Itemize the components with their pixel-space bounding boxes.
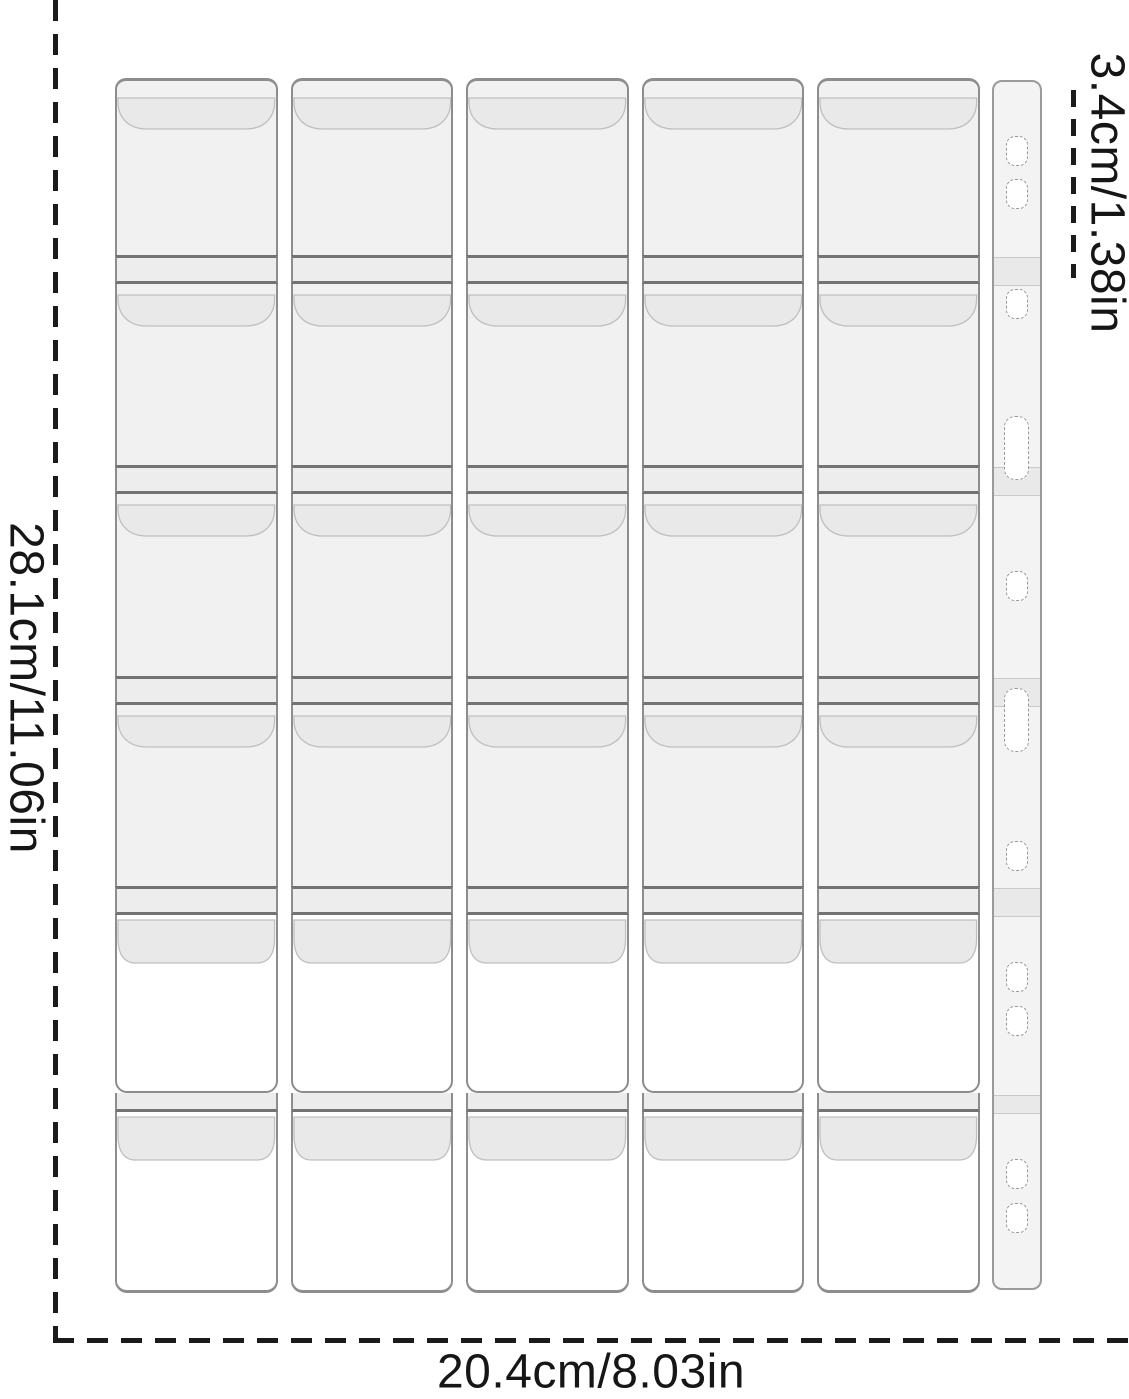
pocket-flap bbox=[117, 97, 276, 132]
pocket-cell bbox=[817, 78, 980, 255]
pocket-measure-line bbox=[1071, 90, 1076, 278]
pocket-flap bbox=[819, 919, 978, 965]
row-separator-band bbox=[115, 886, 278, 915]
row-separator-band bbox=[817, 465, 980, 494]
row-separator-band bbox=[291, 465, 454, 494]
width-measure-line bbox=[53, 1338, 1129, 1343]
pocket-flap bbox=[644, 1116, 803, 1162]
pocket-flap bbox=[819, 1116, 978, 1162]
pocket-column bbox=[115, 78, 278, 1293]
pocket-cell bbox=[817, 915, 980, 1093]
binder-hole bbox=[1006, 289, 1028, 319]
binder-hole bbox=[1004, 416, 1029, 480]
pocket-flap bbox=[293, 919, 452, 965]
strip-seam-band bbox=[994, 1095, 1040, 1114]
binder-edge-strip bbox=[992, 80, 1042, 1290]
pocket-cell bbox=[115, 494, 278, 676]
pocket-cell bbox=[466, 705, 629, 886]
pocket-flap bbox=[819, 97, 978, 132]
pocket-cell bbox=[642, 705, 805, 886]
pocket-dimension-label: 3.4cm/1.38in bbox=[1080, 53, 1129, 334]
pocket-cell bbox=[115, 915, 278, 1093]
pocket-flap bbox=[117, 715, 276, 750]
pocket-column bbox=[291, 78, 454, 1293]
height-dimension-label: 28.1cm/11.06in bbox=[0, 522, 54, 854]
row-separator-band bbox=[642, 255, 805, 284]
pocket-flap bbox=[819, 504, 978, 539]
binder-hole bbox=[1006, 179, 1028, 209]
row-separator-band bbox=[466, 1093, 629, 1112]
row-separator-band bbox=[291, 886, 454, 915]
pocket-cell bbox=[466, 78, 629, 255]
row-separator-band bbox=[115, 676, 278, 705]
pocket-cell bbox=[115, 284, 278, 465]
pocket-flap bbox=[468, 715, 627, 750]
pocket-cell bbox=[291, 494, 454, 676]
pocket-cell bbox=[466, 284, 629, 465]
pocket-flap bbox=[644, 919, 803, 965]
pocket-cell bbox=[466, 1112, 629, 1293]
pocket-column bbox=[817, 78, 980, 1293]
pocket-column bbox=[642, 78, 805, 1293]
pocket-flap bbox=[293, 715, 452, 750]
pocket-flap bbox=[819, 715, 978, 750]
row-separator-band bbox=[642, 1093, 805, 1112]
row-separator-band bbox=[817, 1093, 980, 1112]
pocket-flap bbox=[468, 504, 627, 539]
width-dimension-label: 20.4cm/8.03in bbox=[437, 1345, 745, 1399]
row-separator-band bbox=[291, 1093, 454, 1112]
row-separator-band bbox=[466, 886, 629, 915]
pocket-cell bbox=[817, 284, 980, 465]
pocket-flap bbox=[644, 715, 803, 750]
row-separator-band bbox=[817, 255, 980, 284]
pocket-flap bbox=[644, 504, 803, 539]
pocket-flap bbox=[644, 294, 803, 329]
pocket-flap bbox=[117, 294, 276, 329]
pocket-cell bbox=[115, 705, 278, 886]
row-separator-band bbox=[817, 676, 980, 705]
row-separator-band bbox=[115, 255, 278, 284]
row-separator-band bbox=[642, 676, 805, 705]
pocket-cell bbox=[817, 1112, 980, 1293]
row-separator-band bbox=[115, 465, 278, 494]
pocket-cell bbox=[291, 705, 454, 886]
row-separator-band bbox=[817, 886, 980, 915]
pocket-flap bbox=[468, 919, 627, 965]
row-separator-band bbox=[642, 886, 805, 915]
pocket-flap bbox=[293, 97, 452, 132]
pocket-flap bbox=[644, 97, 803, 132]
pocket-cell bbox=[642, 1112, 805, 1293]
pocket-cell bbox=[817, 494, 980, 676]
pocket-flap bbox=[293, 294, 452, 329]
row-separator-band bbox=[115, 1093, 278, 1112]
strip-seam-band bbox=[994, 888, 1040, 917]
binder-hole bbox=[1006, 962, 1028, 992]
pocket-cell bbox=[466, 915, 629, 1093]
binder-hole bbox=[1006, 571, 1028, 601]
binder-hole bbox=[1006, 136, 1028, 166]
row-separator-band bbox=[291, 676, 454, 705]
pocket-cell bbox=[817, 705, 980, 886]
pocket-cell bbox=[291, 1112, 454, 1293]
row-separator-band bbox=[291, 255, 454, 284]
pocket-flap bbox=[293, 1116, 452, 1162]
pocket-cell bbox=[642, 494, 805, 676]
pocket-cell bbox=[291, 284, 454, 465]
binder-hole bbox=[1004, 688, 1029, 752]
pocket-cell bbox=[291, 915, 454, 1093]
pocket-cell bbox=[642, 915, 805, 1093]
pocket-cell bbox=[291, 78, 454, 255]
row-separator-band bbox=[466, 255, 629, 284]
pocket-cell bbox=[466, 494, 629, 676]
height-measure-line bbox=[53, 0, 58, 1340]
pocket-flap bbox=[293, 504, 452, 539]
pocket-flap bbox=[117, 504, 276, 539]
pocket-cell bbox=[642, 284, 805, 465]
pocket-flap bbox=[819, 294, 978, 329]
pocket-flap bbox=[117, 1116, 276, 1162]
pocket-flap bbox=[468, 294, 627, 329]
product-dimension-diagram: 28.1cm/11.06in 20.4cm/8.03in 3.4cm/1.38i… bbox=[0, 0, 1129, 1399]
strip-seam-band bbox=[994, 257, 1040, 286]
row-separator-band bbox=[466, 465, 629, 494]
pocket-flap bbox=[468, 97, 627, 132]
pocket-cell bbox=[642, 78, 805, 255]
pocket-cell bbox=[115, 1112, 278, 1293]
pocket-flap bbox=[468, 1116, 627, 1162]
row-separator-band bbox=[642, 465, 805, 494]
pocket-cell bbox=[115, 78, 278, 255]
binder-hole bbox=[1006, 1203, 1028, 1233]
binder-hole bbox=[1006, 841, 1028, 871]
binder-hole bbox=[1006, 1006, 1028, 1036]
pocket-flap bbox=[117, 919, 276, 965]
pocket-column bbox=[466, 78, 629, 1293]
binder-hole bbox=[1006, 1159, 1028, 1189]
pocket-page-grid bbox=[115, 78, 980, 1293]
row-separator-band bbox=[466, 676, 629, 705]
